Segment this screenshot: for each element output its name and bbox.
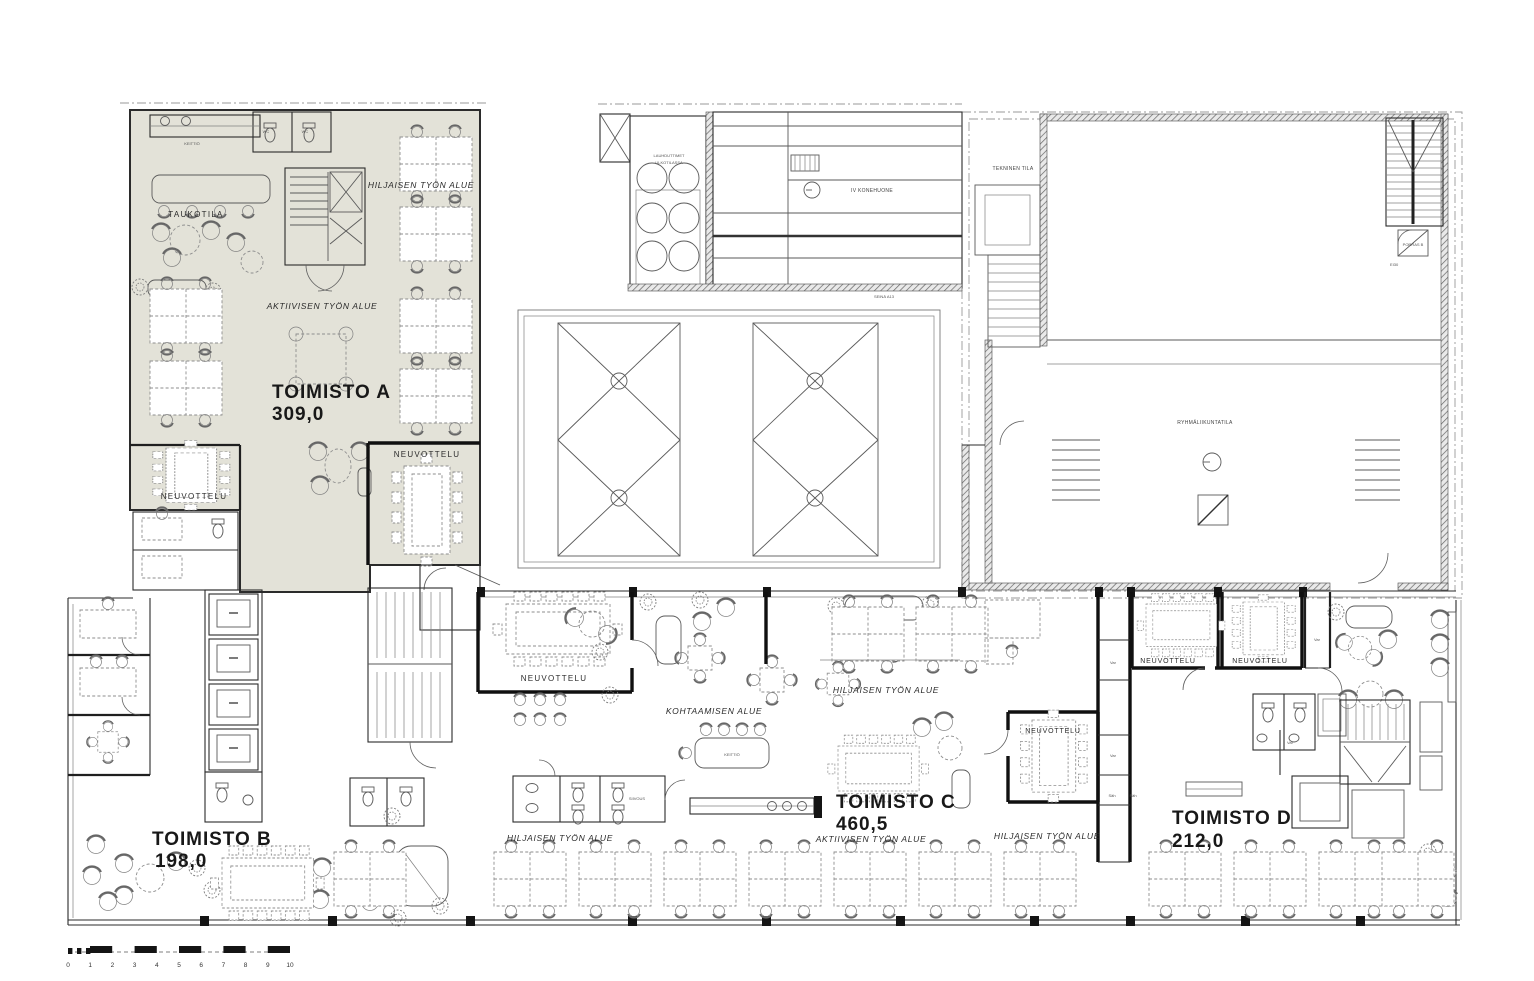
label-aktiivisen-c: AKTIIVISEN TYÖN ALUE	[815, 834, 927, 844]
office-b	[68, 588, 452, 926]
scale-tick-10: 10	[286, 962, 294, 969]
label-porras-b: PORRAS B	[1403, 242, 1424, 247]
floor-plan-page: 0 1 2 3 4 5 6 7 8 9 10 TOIMISTO A 309,0 …	[0, 0, 1534, 981]
label-neuvottelu-b: NEUVOTTELU	[521, 674, 588, 683]
office-a-area: 309,0	[272, 404, 324, 425]
office-c-title: TOIMISTO C	[836, 792, 956, 813]
label-wc-2: WC	[302, 129, 309, 134]
scale-tick-0: 0	[66, 962, 70, 969]
scale-bar: 0 1 2 3 4 5 6 7 8 9 10	[66, 946, 294, 969]
scale-tick-9: 9	[266, 962, 270, 969]
label-hiljaisen-c1: HILJAISEN TYÖN ALUE	[833, 685, 939, 695]
skylight-1	[558, 323, 680, 556]
office-b-area: 198,0	[155, 851, 207, 872]
label-siivous: SIIVOUS	[629, 796, 646, 801]
office-b-title: TOIMISTO B	[152, 829, 272, 850]
scale-tick-7: 7	[222, 962, 226, 969]
label-aktiivisen-a: AKTIIVISEN TYÖN ALUE	[266, 301, 378, 311]
label-kohtaamisen: KOHTAAMISEN ALUE	[666, 706, 762, 716]
mechanical-area	[600, 112, 962, 291]
label-var-1: Var	[1110, 660, 1117, 665]
scale-tick-5: 5	[177, 962, 181, 969]
label-neuvottelu-a1: NEUVOTTELU	[161, 492, 228, 501]
office-d-area: 212,0	[1172, 831, 1224, 852]
courtyard-skylights	[518, 310, 940, 568]
label-hiljaisen-b: HILJAISEN TYÖN ALUE	[507, 833, 613, 843]
scale-tick-8: 8	[244, 962, 248, 969]
label-hiljaisen-c2: HILJAISEN TYÖN ALUE	[994, 831, 1100, 841]
label-ryhmaliikuntatila: RYHMÄLIIKUNTATILA	[1177, 419, 1233, 426]
label-iv-konehuone: IV KONEHUONE	[851, 188, 893, 194]
label-neuvottelu-c: NEUVOTTELU	[1025, 728, 1080, 735]
office-a-title: TOIMISTO A	[272, 382, 391, 403]
label-var-3: Var	[1314, 637, 1321, 642]
label-var-4: Var	[1287, 740, 1294, 745]
hall-building	[962, 114, 1448, 590]
office-c-area: 460,5	[836, 814, 888, 835]
scale-tick-3: 3	[133, 962, 137, 969]
skylight-2	[753, 323, 878, 556]
scale-tick-2: 2	[111, 962, 115, 969]
scale-tick-6: 6	[199, 962, 203, 969]
label-neuvottelu-d2: NEUVOTTELU	[1232, 658, 1287, 665]
label-neuvottelu-a2: NEUVOTTELU	[394, 450, 461, 459]
label-var-2: Var	[1110, 753, 1117, 758]
label-hiljaisen-a: HILJAISEN TYÖN ALUE	[368, 180, 474, 190]
desk-row	[494, 840, 1454, 918]
floor-plan-drawing: 0 1 2 3 4 5 6 7 8 9 10 TOIMISTO A 309,0 …	[0, 0, 1534, 981]
label-sah-2: Säh	[1129, 793, 1136, 798]
label-neuvottelu-d1: NEUVOTTELU	[1140, 658, 1195, 665]
label-sah-1: Säh	[1108, 793, 1115, 798]
label-lauhduttimet-1: LAUHDUTTIMET	[654, 153, 685, 158]
label-tekninen-tila: TEKNINEN TILA	[992, 166, 1033, 172]
label-ei30: EI30	[1390, 262, 1399, 267]
scale-tick-1: 1	[88, 962, 92, 969]
office-c	[766, 592, 1130, 862]
label-keittio-a: KEITTIÖ	[184, 141, 200, 146]
label-wc-1: WC	[263, 129, 270, 134]
label-seina-a13: SEINÄ A13	[874, 294, 895, 299]
label-keittio-island: KEITTIÖ	[724, 752, 740, 757]
office-d-title: TOIMISTO D	[1172, 808, 1292, 829]
label-taukotila: TAUKOTILA	[168, 210, 223, 219]
scale-tick-4: 4	[155, 962, 159, 969]
label-lauhduttimet-2: ULKOTILASSA	[655, 160, 683, 165]
